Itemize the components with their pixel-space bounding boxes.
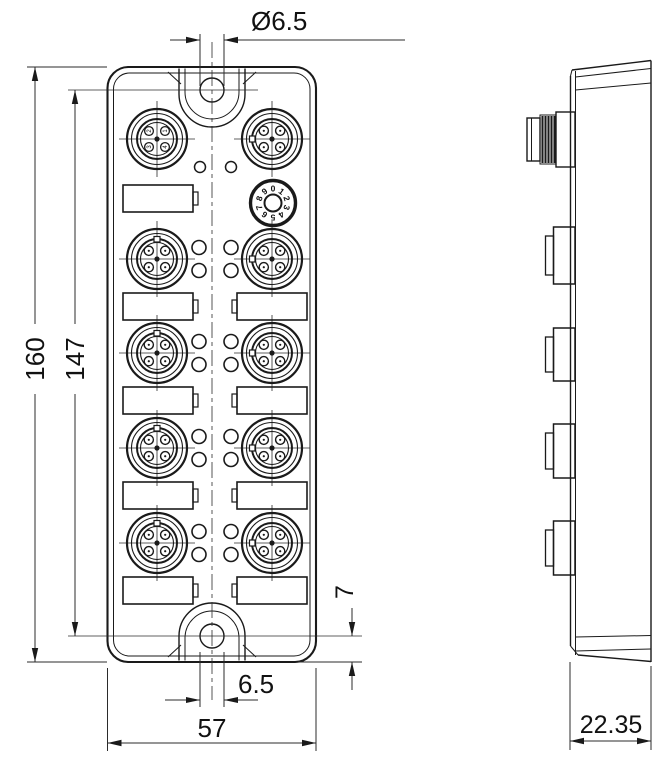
m12-connector [234,221,310,297]
connector-tip [527,118,540,161]
led-indicator [224,241,238,255]
center-pin [154,350,159,355]
led-indicator [192,241,206,255]
led-indicator [192,453,206,467]
label-plate [123,387,198,414]
center-pin [154,256,159,261]
side-top-chamfer [571,70,573,76]
m12-connector [234,101,310,177]
rotary-digit: 2 [281,195,292,203]
rotary-switch-slot [265,195,282,212]
center-pin [154,445,159,450]
led-indicator [192,525,206,539]
technical-drawing: 2134 0123456789 [0,0,656,758]
rotary-switch-digits: 0123456789 [254,184,293,223]
keying-notch [250,136,256,142]
keying-notch [250,350,256,356]
led-indicator [224,264,238,278]
rotary-digit: 3 [281,204,292,212]
dim-hole-diameter-label: Ø6.5 [251,6,307,36]
keying-notch [154,521,160,527]
front-view: 2134 0123456789 [68,42,362,700]
m12-connector [234,410,310,486]
dim-overall-depth-label: 22.35 [580,711,643,739]
led-indicator [224,430,238,444]
led-indicator [192,358,206,372]
led-indicator-array [192,162,238,562]
center-pin [269,540,274,545]
center-pin [269,445,274,450]
keying-notch [154,426,160,432]
dim-overall-height-label: 160 [20,337,50,380]
dim-hole-diameter: Ø6.5 [170,6,405,86]
m12-connector [234,315,310,391]
rotary-digit: 0 [271,184,276,194]
pin-number: 1 [163,129,169,133]
center-pin [269,136,274,141]
technical-drawing-page: 2134 0123456789 [0,0,656,758]
keying-notch [250,445,256,451]
label-plate [123,482,198,509]
center-pin [269,350,274,355]
m12-connector [234,505,310,581]
connector-threads [543,116,555,163]
rotary-digit: 8 [254,194,265,202]
dim-bottom-hole-width: 6.5 [165,652,274,707]
label-plate [232,387,307,414]
rotary-address-switch: 0123456789 [251,181,296,226]
led-indicator [192,430,206,444]
label-plate [123,293,198,320]
side-m12-connector [527,112,575,167]
dim-overall-width-label: 57 [198,713,227,743]
pin-number: 4 [163,145,169,149]
side-bottom-seam [576,636,652,638]
dim-overall-depth: 22.35 [570,662,651,750]
m12-connector [119,315,195,391]
m12-connector [119,221,195,297]
m12-connector [119,410,195,486]
label-plate [123,185,198,212]
label-plate-array [123,185,307,604]
center-pin [269,256,274,261]
led-indicator [192,548,206,562]
led-indicator [224,335,238,349]
label-plate [123,577,198,604]
connector-base [556,112,575,167]
rotary-digit: 5 [270,213,275,223]
label-plate [232,482,307,509]
keying-notch [154,331,160,337]
side-top-seam [576,69,652,78]
side-top-seam2 [576,83,652,90]
label-plate [232,577,307,604]
side-view [527,61,651,663]
center-pin [154,136,159,141]
dim-bottom-offset-label: 7 [331,585,359,599]
m12-connector [119,505,195,581]
dim-hole-spacing: 147 [60,90,90,636]
keying-notch [154,237,160,243]
dim-hole-spacing-label: 147 [60,337,90,380]
side-bottom-edge [578,655,651,662]
rotary-digit: 7 [254,203,265,211]
led-indicator [226,162,237,173]
label-plate [232,293,307,320]
led-indicator [195,162,206,173]
keying-notch [250,256,256,262]
m12-connector: 2134 [119,101,195,177]
center-pin [154,540,159,545]
pin-number: 3 [147,145,153,149]
side-bottom-seam2 [576,649,652,651]
pin-number: 2 [147,129,153,133]
keying-notch [250,540,256,546]
led-indicator [192,264,206,278]
led-indicator [224,358,238,372]
led-indicator [224,453,238,467]
dim-bottom-hole-width-label: 6.5 [238,669,274,699]
led-indicator [192,335,206,349]
side-top-edge [572,61,651,71]
led-indicator [224,525,238,539]
led-indicator [224,548,238,562]
